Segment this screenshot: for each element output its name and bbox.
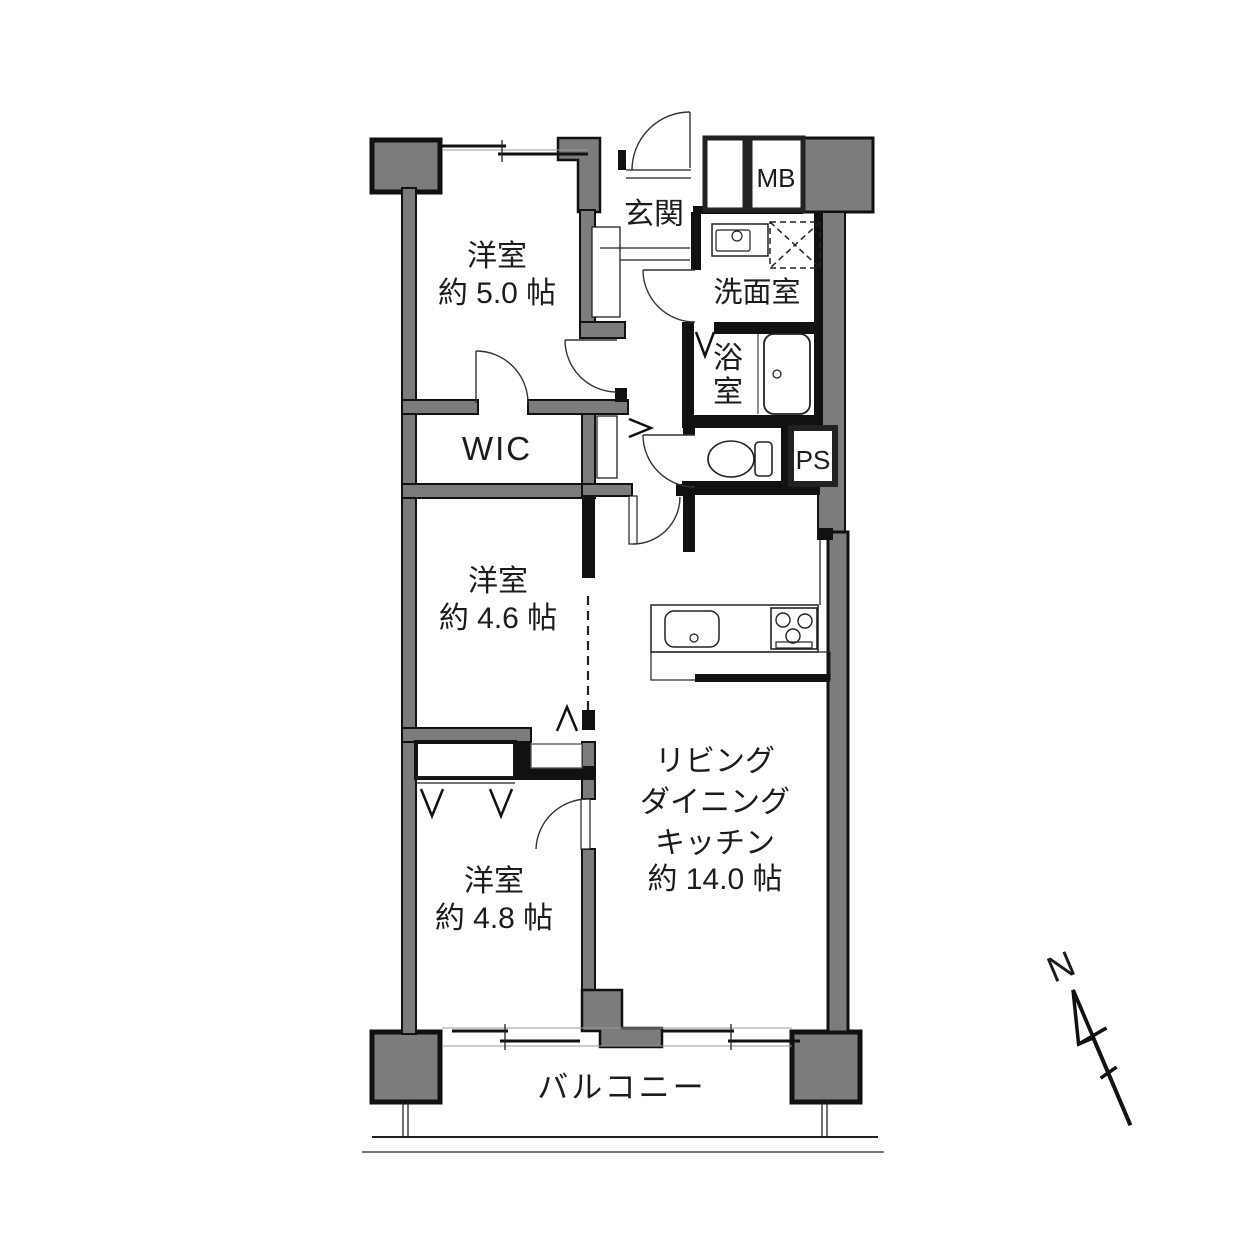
bedroom3-door <box>536 799 590 849</box>
closet-door-mark-3 <box>557 707 577 731</box>
bedroom2-label: 洋室 <box>468 565 528 598</box>
toilet-door <box>643 435 695 487</box>
bedroom3-closet <box>416 742 515 778</box>
north-arrow: N <box>1040 940 1145 1131</box>
wall-bedroom3-ldk-lower <box>582 849 595 990</box>
pillar-bottom-left <box>372 1032 440 1102</box>
wall-bottom-center-block <box>582 990 662 1047</box>
outer-wall-right-lower <box>828 532 848 1032</box>
meter-box-label: MB <box>757 163 796 193</box>
shoe-cabinet <box>592 227 620 317</box>
washroom-label: 洗面室 <box>713 276 800 309</box>
wall-corner-bedroom1 <box>558 138 600 212</box>
toilet-icon <box>708 441 772 477</box>
ldk-label-line2: ダイニング <box>640 786 790 819</box>
wall-wic-bedroom2 <box>402 484 595 498</box>
north-label: N <box>1041 942 1081 990</box>
floor-plan: N 洋室 約 5.0 帖 洋室 約 4.6 帖 洋室 約 4.8 帖 リビング … <box>0 0 1252 1252</box>
wic-door <box>476 351 528 403</box>
washroom-door <box>643 270 695 322</box>
outer-wall-left <box>402 188 416 1034</box>
bathroom-folding-door-mark <box>696 332 714 356</box>
bedroom3-size: 約 4.8 帖 <box>435 902 553 935</box>
kitchen-sink-icon <box>665 611 719 647</box>
bedroom3-label: 洋室 <box>464 865 524 898</box>
bathtub-icon <box>758 334 810 414</box>
wall-bedroom2-closet <box>402 728 531 742</box>
pipe-space-label: PS <box>796 445 831 475</box>
wall-bedroom1-wic-left <box>402 400 478 414</box>
hall-storage <box>597 416 617 478</box>
wall-wic-right <box>582 414 595 486</box>
bedroom1-size: 約 5.0 帖 <box>438 277 556 310</box>
entry-door <box>632 112 690 170</box>
ldk-label-line3: キッチン <box>655 827 775 860</box>
closet-door-mark-2 <box>490 789 512 816</box>
bedroom1-label: 洋室 <box>467 240 527 273</box>
wall-hall-ldk <box>582 484 632 496</box>
entrance-label: 玄関 <box>624 198 684 231</box>
ldk-size: 約 14.0 帖 <box>647 863 782 896</box>
bedroom2-closet <box>531 744 582 768</box>
ldk-door <box>629 496 680 544</box>
floor-plan-drawing: N 洋室 約 5.0 帖 洋室 約 4.6 帖 洋室 約 4.8 帖 リビング … <box>0 0 1252 1252</box>
bedroom2-size: 約 4.6 帖 <box>439 602 557 635</box>
wic-label: WIC <box>462 430 532 467</box>
bathroom-label-char2: 室 <box>713 376 743 409</box>
ldk-label-line1: リビング <box>655 745 775 778</box>
balcony-label: バルコニー <box>537 1070 706 1105</box>
washer-pan-icon <box>770 222 820 268</box>
pillar-bottom-right <box>792 1032 860 1102</box>
pillar-top-left <box>372 140 440 192</box>
trunk-box <box>705 138 745 210</box>
closet-door-mark-1 <box>421 789 443 816</box>
vanity-sink-icon <box>712 224 768 256</box>
kitchen-counter <box>651 605 830 682</box>
partition-walls <box>515 150 833 780</box>
stove-icon <box>771 608 817 649</box>
wall-hall-jog <box>580 322 625 338</box>
bedroom1-door <box>565 340 617 392</box>
wall-bedroom1-wic-right <box>528 400 628 414</box>
bathroom-label-char1: 浴 <box>713 342 743 375</box>
outer-wall-top-right <box>800 138 873 212</box>
